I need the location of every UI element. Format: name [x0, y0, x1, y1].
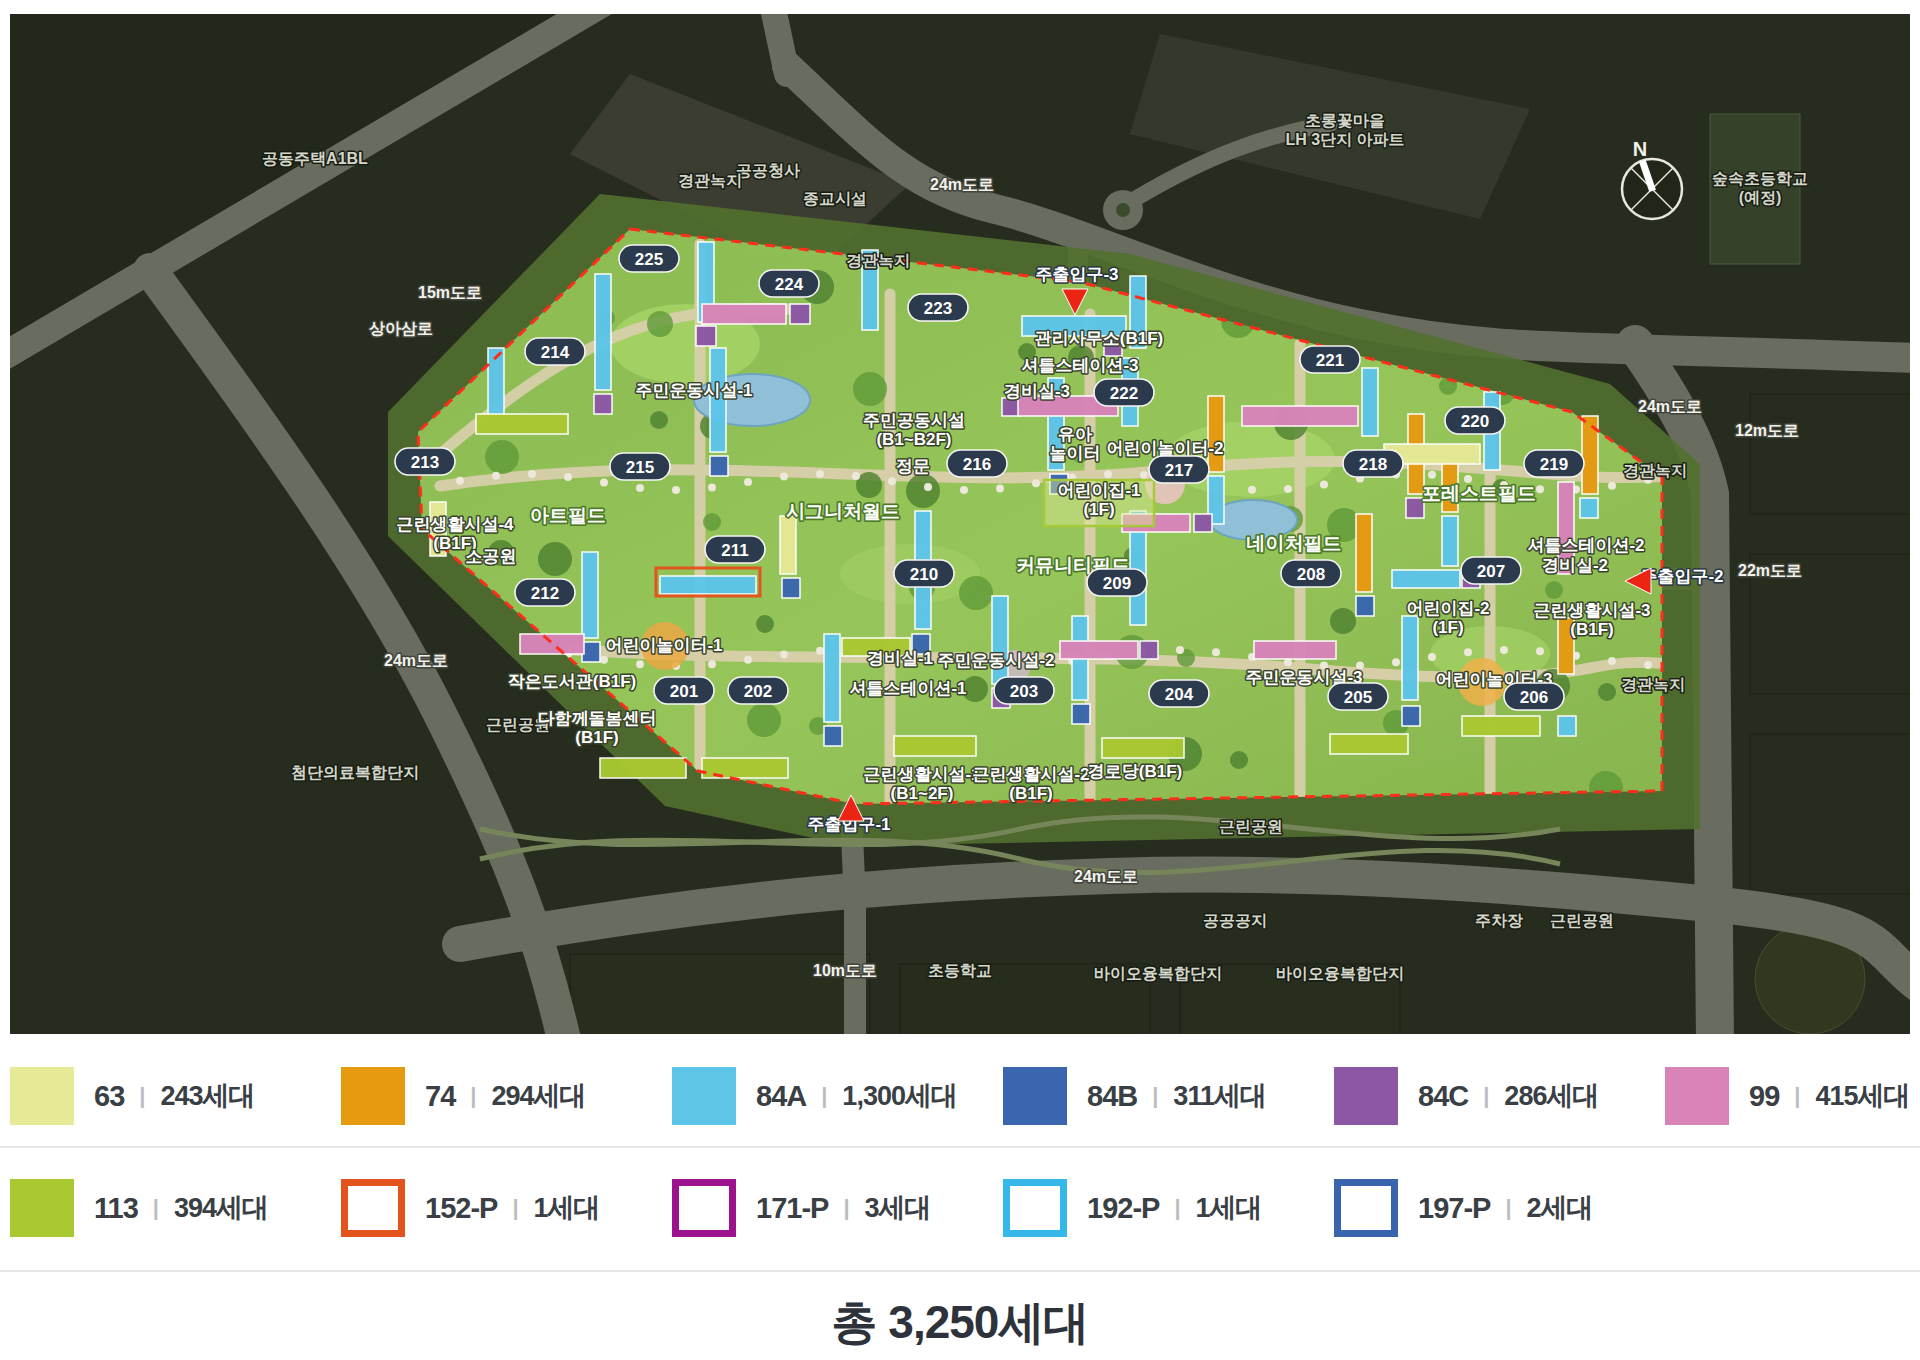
compass-icon: [1622, 159, 1682, 219]
legend-count: 2세대: [1527, 1190, 1593, 1226]
map-label: 아트필드: [530, 505, 606, 526]
building-badge-214: 214: [525, 338, 585, 365]
building-badge-225: 225: [619, 245, 679, 272]
map-label: 12m도로: [1735, 422, 1799, 439]
map-label: 주출입구-2: [1640, 567, 1723, 586]
divider-1: [0, 1146, 1920, 1148]
building-badge-221: 221: [1300, 346, 1360, 373]
map-label: 소공원: [466, 547, 517, 566]
map-label: 관리사무소(B1F): [1035, 329, 1163, 348]
site-plan-svg: 공동주택A1BL공공청사종교시설경관녹지경관녹지24m도로초롱꽃마을LH 3단지…: [10, 14, 1910, 1034]
svg-text:207: 207: [1477, 562, 1505, 581]
building-badge-224: 224: [759, 270, 819, 297]
map-label: 바이오융복합단지: [1094, 965, 1222, 982]
building-badge-218: 218: [1343, 450, 1403, 477]
legend-type-label: 84C: [1418, 1080, 1468, 1113]
svg-text:204: 204: [1165, 685, 1194, 704]
legend-type-label: 99: [1749, 1080, 1779, 1113]
legend-type-label: 84B: [1087, 1080, 1137, 1113]
legend-swatch-197-P: [1334, 1179, 1398, 1237]
map-label: 경관녹지: [846, 252, 910, 269]
map-label: 공공공지: [1203, 912, 1267, 929]
map-label: 작은도서관(B1F): [508, 672, 636, 691]
building-badge-223: 223: [908, 294, 968, 321]
legend-separator: |: [821, 1083, 827, 1109]
building-badge-219: 219: [1524, 450, 1584, 477]
map-label: 셔틀스테이션-1: [849, 679, 966, 698]
building-badge-213: 213: [395, 448, 455, 475]
svg-text:203: 203: [1010, 682, 1038, 701]
legend-separator: |: [153, 1195, 159, 1221]
legend-count: 3세대: [865, 1190, 931, 1226]
svg-text:216: 216: [963, 455, 991, 474]
svg-text:211: 211: [721, 541, 748, 560]
map-label: 22m도로: [1738, 562, 1802, 579]
building-badge-205: 205: [1328, 683, 1388, 710]
map-label: 공공청사: [736, 162, 801, 179]
legend-count: 394세대: [174, 1190, 268, 1226]
legend-separator: |: [843, 1195, 849, 1221]
map-label: 주민공동시설(B1~B2F): [863, 411, 965, 449]
map-label: 24m도로: [1638, 398, 1702, 415]
map-label: 주민운동시설-1: [635, 381, 752, 400]
map-label: 주차장: [1475, 912, 1523, 929]
legend-item-84C: 84C|286세대: [1334, 1066, 1598, 1126]
map-label: 주민운동시설-2: [937, 651, 1054, 670]
site-plan-map: 공동주택A1BL공공청사종교시설경관녹지경관녹지24m도로초롱꽃마을LH 3단지…: [10, 14, 1910, 1034]
building-badge-216: 216: [947, 450, 1007, 477]
map-label: 어린이놀이터-2: [1106, 439, 1223, 458]
map-label: 상아삼로: [369, 320, 433, 337]
legend-item-63: 63|243세대: [10, 1066, 254, 1126]
svg-text:210: 210: [910, 565, 938, 584]
legend-item-84B: 84B|311세대: [1003, 1066, 1266, 1126]
building-badge-212: 212: [515, 579, 575, 606]
map-label: 10m도로: [813, 962, 877, 979]
legend-item-99: 99|415세대: [1665, 1066, 1909, 1126]
legend-separator: |: [1505, 1195, 1511, 1221]
building-badge-210: 210: [894, 560, 954, 587]
legend-item-84A: 84A|1,300세대: [672, 1066, 957, 1126]
legend-separator: |: [1794, 1083, 1800, 1109]
legend-swatch-63: [10, 1067, 74, 1125]
legend-separator: |: [1152, 1083, 1158, 1109]
svg-text:222: 222: [1110, 384, 1138, 403]
divider-2: [0, 1270, 1920, 1272]
legend-type-label: 113: [94, 1192, 138, 1225]
map-label: 정문: [896, 457, 930, 476]
svg-text:219: 219: [1540, 455, 1568, 474]
building-badge-203: 203: [994, 677, 1054, 704]
map-label: 초등학교: [928, 962, 992, 979]
map-label: 셔틀스테이션-3: [1021, 356, 1138, 375]
legend-separator: |: [512, 1195, 518, 1221]
legend-swatch-84B: [1003, 1067, 1067, 1125]
legend-item-113: 113|394세대: [10, 1178, 268, 1238]
legend-item-152-P: 152-P|1세대: [341, 1178, 600, 1238]
map-label: 24m도로: [1074, 868, 1138, 885]
svg-text:209: 209: [1103, 574, 1131, 593]
building-badge-206: 206: [1504, 683, 1564, 710]
legend-count: 243세대: [160, 1078, 254, 1114]
legend-separator: |: [470, 1083, 476, 1109]
legend-type-label: 171-P: [756, 1192, 828, 1225]
legend-type-label: 152-P: [425, 1192, 497, 1225]
svg-text:214: 214: [541, 343, 570, 362]
total-households: 총 3,250세대: [0, 1292, 1920, 1354]
legend-item-171-P: 171-P|3세대: [672, 1178, 931, 1238]
map-label: 포레스트필드: [1422, 483, 1536, 504]
building-badge-202: 202: [728, 677, 788, 704]
svg-text:208: 208: [1297, 565, 1325, 584]
legend-swatch-84C: [1334, 1067, 1398, 1125]
legend-separator: |: [1174, 1195, 1180, 1221]
legend-separator: |: [139, 1083, 145, 1109]
map-label: 경비실-2: [1542, 556, 1608, 575]
legend-row-1: 63|243세대74|294세대84A|1,300세대84B|311세대84C|…: [10, 1066, 1910, 1126]
map-label: 공동주택A1BL: [262, 150, 368, 167]
legend-swatch-74: [341, 1067, 405, 1125]
map-label: 바이오융복합단지: [1276, 965, 1404, 982]
legend-type-label: 63: [94, 1080, 124, 1113]
svg-text:225: 225: [635, 250, 663, 269]
svg-text:201: 201: [670, 682, 698, 701]
building-badge-211: 211: [705, 536, 765, 563]
map-label: 주출입구-3: [1035, 265, 1118, 284]
svg-text:212: 212: [531, 584, 559, 603]
map-label: 24m도로: [930, 176, 994, 193]
building-badge-215: 215: [610, 453, 670, 480]
building-badge-207: 207: [1461, 557, 1521, 584]
legend-item-192-P: 192-P|1세대: [1003, 1178, 1262, 1238]
map-label: 경관녹지: [1621, 676, 1685, 693]
map-label: 네이처필드: [1247, 533, 1342, 554]
legend-swatch-192-P: [1003, 1179, 1067, 1237]
legend-swatch-113: [10, 1179, 74, 1237]
legend-item-74: 74|294세대: [341, 1066, 585, 1126]
building-badge-220: 220: [1445, 407, 1505, 434]
legend-count: 1세대: [1196, 1190, 1262, 1226]
map-label: 15m도로: [418, 284, 482, 301]
legend-swatch-99: [1665, 1067, 1729, 1125]
legend-count: 1세대: [534, 1190, 600, 1226]
legend-type-label: 74: [425, 1080, 455, 1113]
legend-count: 294세대: [491, 1078, 585, 1114]
legend-separator: |: [1483, 1083, 1489, 1109]
building-badge-217: 217: [1149, 456, 1209, 483]
legend-item-197-P: 197-P|2세대: [1334, 1178, 1593, 1238]
svg-text:223: 223: [924, 299, 952, 318]
map-label: N: [1633, 138, 1647, 160]
legend-swatch-152-P: [341, 1179, 405, 1237]
legend-type-label: 197-P: [1418, 1192, 1490, 1225]
svg-text:206: 206: [1520, 688, 1548, 707]
building-badge-209: 209: [1087, 569, 1147, 596]
map-label: 경비실-3: [1004, 382, 1070, 401]
map-label: 근린공원: [1550, 912, 1614, 929]
svg-text:215: 215: [626, 458, 654, 477]
svg-text:205: 205: [1344, 688, 1372, 707]
svg-text:202: 202: [744, 682, 772, 701]
map-label: 경비실-1: [867, 649, 933, 668]
svg-text:224: 224: [775, 275, 804, 294]
svg-text:220: 220: [1461, 412, 1489, 431]
legend-swatch-171-P: [672, 1179, 736, 1237]
site-plan-page: 공동주택A1BL공공청사종교시설경관녹지경관녹지24m도로초롱꽃마을LH 3단지…: [0, 0, 1920, 1360]
map-label: 24m도로: [384, 652, 448, 669]
legend-count: 1,300세대: [842, 1078, 957, 1114]
map-label: 경관녹지: [1623, 462, 1687, 479]
map-label: 어린이놀이터-1: [605, 636, 722, 655]
building-badge-204: 204: [1149, 680, 1209, 707]
legend-type-label: 84A: [756, 1080, 806, 1113]
building-badge-201: 201: [654, 677, 714, 704]
legend-count: 311세대: [1173, 1078, 1266, 1114]
svg-text:217: 217: [1165, 461, 1193, 480]
building-badge-222: 222: [1094, 379, 1154, 406]
map-label: 시그니처월드: [786, 501, 900, 522]
map-label: 셔틀스테이션-2: [1527, 536, 1644, 555]
map-label: 첨단의료복합단지: [291, 764, 419, 781]
legend-count: 415세대: [1815, 1078, 1909, 1114]
map-label: 경로당(B1F): [1088, 762, 1182, 781]
legend-row-2: 113|394세대152-P|1세대171-P|3세대192-P|1세대197-…: [10, 1178, 1910, 1238]
svg-text:213: 213: [411, 453, 439, 472]
svg-text:218: 218: [1359, 455, 1387, 474]
map-label: 종교시설: [803, 190, 867, 207]
map-label: 경관녹지: [678, 172, 742, 189]
svg-text:221: 221: [1316, 351, 1344, 370]
map-label: 근린공원: [1219, 818, 1283, 835]
building-badge-208: 208: [1281, 560, 1341, 587]
legend-count: 286세대: [1504, 1078, 1598, 1114]
legend-swatch-84A: [672, 1067, 736, 1125]
legend-type-label: 192-P: [1087, 1192, 1159, 1225]
